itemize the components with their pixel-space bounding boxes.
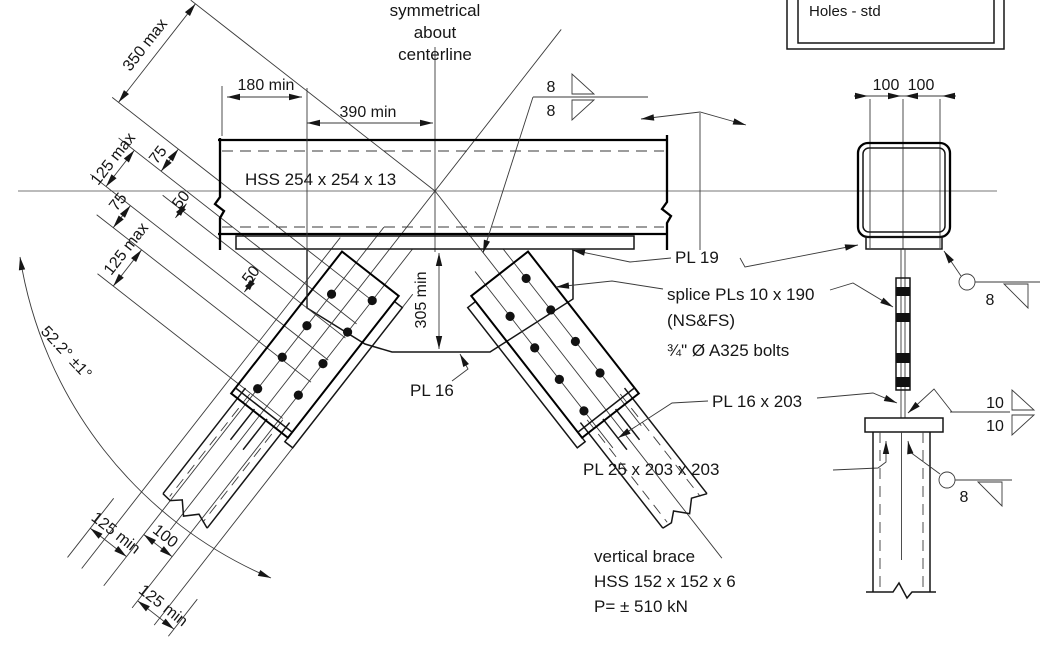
weld-symbol-8-circle-top: 8 — [944, 251, 1040, 309]
pl19-label: PL 19 — [675, 248, 719, 267]
bolt — [276, 351, 289, 364]
dim-75: 75 — [106, 190, 130, 215]
drawing-page: 52.2° ±1° — [0, 0, 1048, 647]
bolt-band — [896, 353, 910, 363]
pl25-label: PL 25 x 203 x 203 — [583, 460, 719, 479]
left-brace-group: 100 125 min 125 min — [0, 0, 616, 640]
angle-dim: 52.2° ±1° — [37, 323, 94, 383]
dim-100: 100 — [873, 77, 900, 94]
connection-detail-drawing: 52.2° ±1° — [0, 0, 1048, 647]
bolt-band — [896, 377, 910, 387]
weld-all-around-icon — [959, 274, 975, 290]
fillet-weld-icon — [572, 100, 594, 120]
fillet-weld-icon — [1012, 390, 1034, 410]
dim-305: 305 min — [413, 272, 430, 329]
brace-note-line1: vertical brace — [594, 547, 695, 566]
bolt — [366, 294, 379, 307]
bolt — [594, 367, 607, 380]
pl16x203-leader-right — [817, 393, 897, 403]
gusset-plate-outline — [307, 250, 573, 352]
edge-line — [82, 238, 341, 569]
far-side-splice-sliver — [285, 301, 402, 447]
bolt — [528, 341, 541, 354]
dim-50: 50 — [169, 188, 193, 213]
bolt — [292, 389, 305, 402]
dim-50: 50 — [239, 263, 263, 288]
bolt — [520, 272, 533, 285]
brace-tube-wall — [163, 388, 245, 494]
pl19-leader-right — [740, 245, 858, 267]
weld-all-around-icon — [939, 472, 955, 488]
bolt — [578, 404, 591, 417]
bolt — [569, 335, 582, 348]
dim-100: 100 — [908, 77, 935, 94]
beam-continues-arrow — [641, 112, 746, 125]
right-brace-group — [399, 169, 751, 587]
brace-tube-wall — [207, 423, 289, 529]
beam-right-end — [662, 135, 671, 250]
weld-leader — [908, 441, 940, 474]
bolt — [504, 310, 517, 323]
bolt — [544, 303, 557, 316]
bolt — [325, 288, 338, 301]
weld-leader — [908, 389, 952, 413]
weld-size-8: 8 — [547, 79, 556, 96]
symmetry-note-line1: symmetrical — [390, 1, 481, 20]
station-line — [191, 0, 435, 191]
splice-label: splice PLs 10 x 190 — [667, 285, 814, 304]
symmetry-note-line2: about — [414, 23, 457, 42]
weld-size-8: 8 — [547, 103, 556, 120]
splice-label2: (NS&FS) — [667, 311, 735, 330]
hss-section-outer — [858, 143, 950, 237]
pl16-label: PL 16 — [410, 381, 454, 400]
beam-label: HSS 254 x 254 x 13 — [245, 170, 396, 189]
splice-leader-left — [556, 281, 663, 289]
bolt — [251, 382, 264, 395]
splice-plate-endline — [235, 388, 292, 432]
weld-symbol-8-8: 8 8 — [483, 74, 648, 253]
pl16x203-label: PL 16 x 203 — [712, 392, 802, 411]
splice-leader-right — [830, 283, 893, 307]
symmetry-note-line3: centerline — [398, 45, 472, 64]
side-plate-pl19 — [866, 237, 942, 249]
dim-125max: 125 max — [88, 130, 139, 189]
cap-plate-pl25 — [865, 418, 943, 432]
brace-tube-hidden — [203, 420, 283, 522]
hss-section-inner — [863, 148, 945, 232]
slot-plate-edge — [243, 419, 267, 450]
weld-size-8: 8 — [986, 292, 995, 309]
fillet-weld-icon — [1012, 415, 1034, 435]
brace-note-line3: P= ± 510 kN — [594, 597, 688, 616]
far-side-splice-sliver — [468, 301, 585, 447]
brace-tube-hidden — [620, 394, 700, 496]
holes-note: Holes - std — [809, 3, 881, 20]
brace-note-line2: HSS 152 x 152 x 6 — [594, 572, 736, 591]
dim-100: 100 — [149, 522, 181, 552]
station-line — [119, 138, 357, 324]
pl19-leader-left — [572, 250, 671, 262]
bolt-band — [896, 287, 910, 296]
right-brace-centerline — [435, 191, 722, 558]
weld-symbol-10-10: 10 10 — [908, 389, 1034, 435]
bolt-band — [896, 313, 910, 322]
weld-symbol-8-circle-bottom: 8 — [908, 441, 1012, 506]
pl16-leader — [452, 354, 468, 381]
pl16x203-leader-left — [618, 401, 708, 438]
angle-arc — [20, 257, 271, 578]
fillet-weld-icon — [1004, 284, 1028, 308]
brace-tube-hidden — [170, 394, 250, 496]
weld-size-10: 10 — [986, 418, 1004, 435]
dim-390: 390 min — [340, 104, 397, 121]
dim-180: 180 min — [238, 77, 295, 94]
bolts-note: ¾" Ø A325 bolts — [667, 341, 789, 360]
weld-size-10: 10 — [986, 395, 1004, 412]
pl25-leader — [833, 441, 886, 470]
fillet-weld-icon — [572, 74, 594, 94]
column-break — [866, 583, 936, 598]
bolt — [553, 373, 566, 386]
weld-size-8: 8 — [960, 489, 969, 506]
weld-leader — [944, 251, 961, 276]
bolt — [300, 319, 313, 332]
fillet-weld-icon — [978, 482, 1002, 506]
